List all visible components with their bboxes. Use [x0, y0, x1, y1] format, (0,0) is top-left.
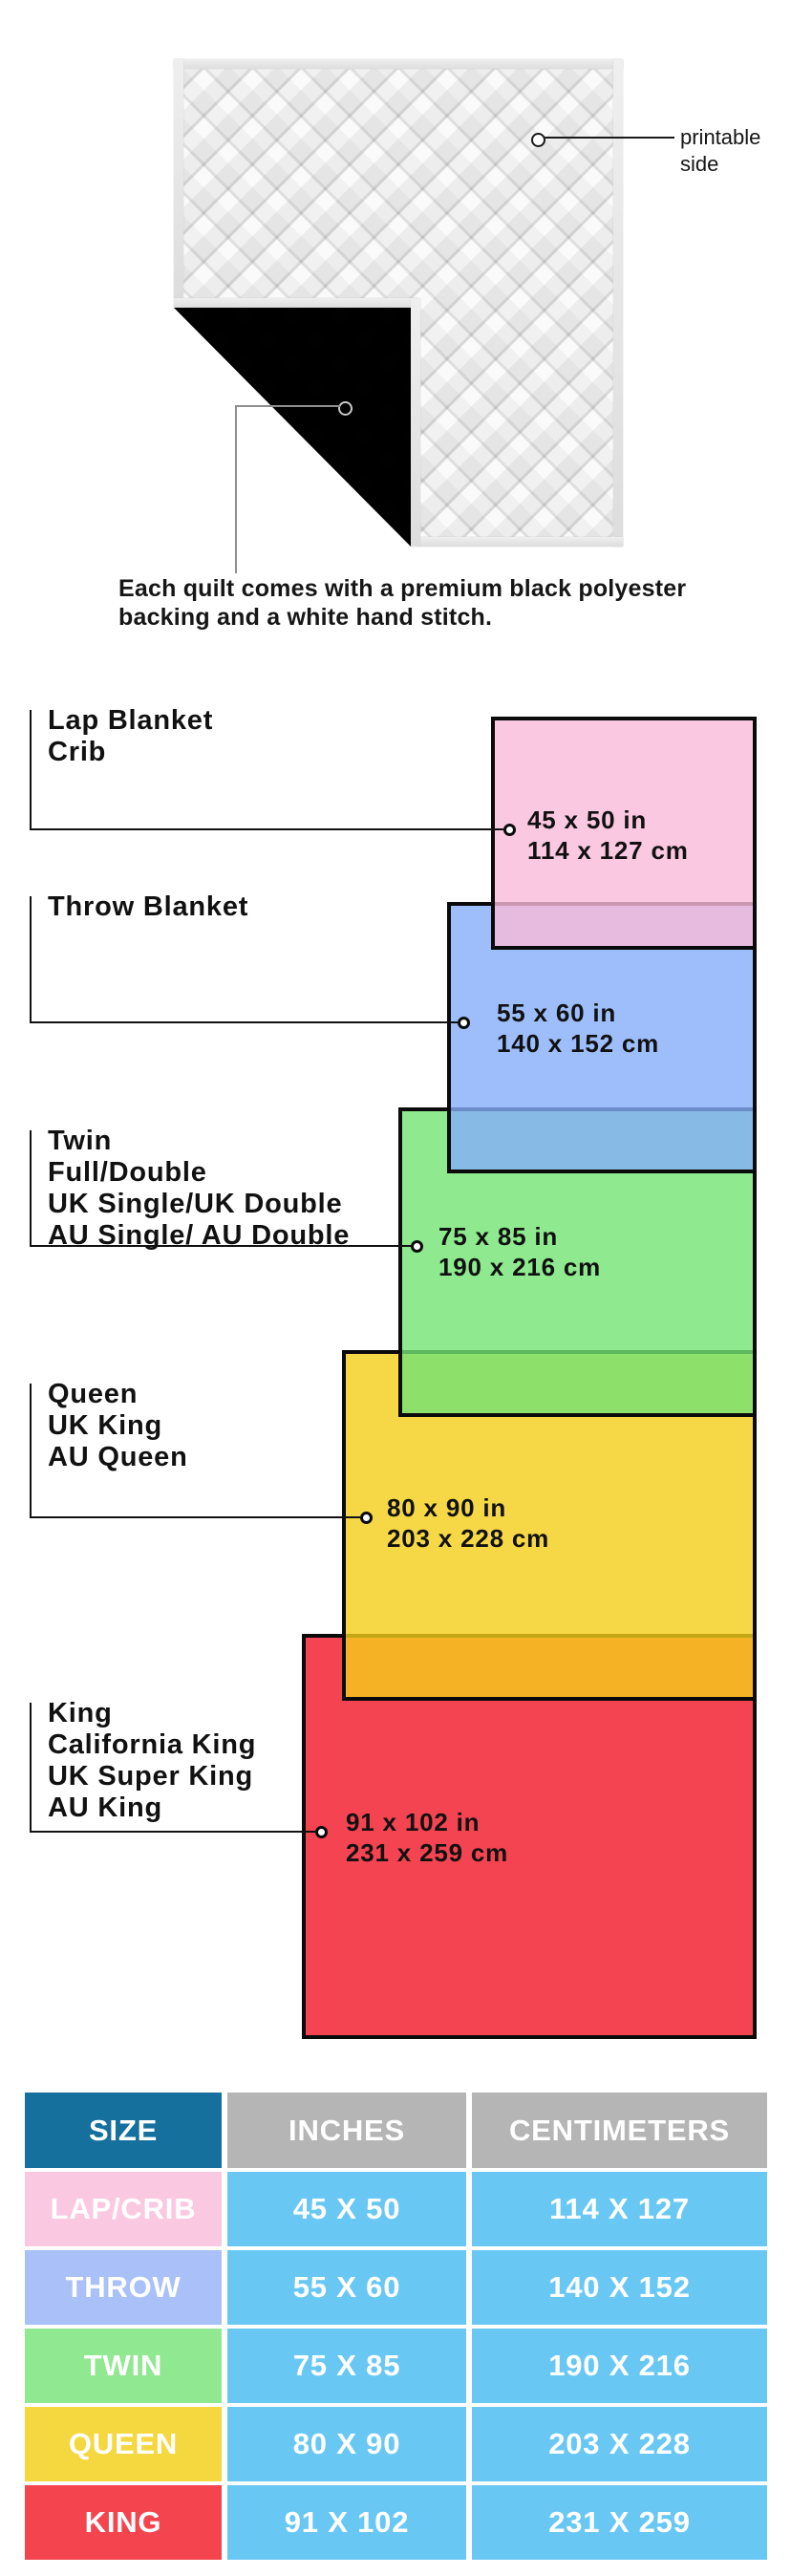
size-label-king-line4: AU King — [48, 1792, 256, 1824]
table-row-lap-size: LAP/CRIB — [25, 2172, 222, 2246]
quilt-caption-line1: Each quilt comes with a premium black po… — [118, 574, 686, 603]
size-label-twin-line4: AU Single/ AU Double — [48, 1220, 350, 1252]
printable-side-callout-line — [544, 137, 674, 139]
lap-connector-tick — [30, 710, 32, 829]
table-row-twin-cm: 190 X 216 — [472, 2329, 767, 2403]
queen-connector-dot — [360, 1512, 373, 1524]
size-label-queen: Queen UK King AU Queen — [48, 1379, 188, 1473]
queen-dim-inches: 80 x 90 in — [387, 1492, 549, 1523]
quilt-size-guide-infographic: printable side Each quilt comes with a p… — [0, 0, 791, 2576]
size-label-lap-line1: Lap Blanket — [48, 705, 213, 737]
quilt-binding-top — [174, 59, 623, 69]
size-label-king-line2: California King — [48, 1729, 256, 1761]
backing-marker-dot — [338, 401, 353, 416]
throw-connector-tick — [30, 896, 32, 1022]
twin-connector-line — [30, 1245, 411, 1247]
table-row-twin-size: TWIN — [25, 2329, 222, 2403]
table-row-twin-inches: 75 X 85 — [227, 2329, 466, 2403]
table-row-queen-inches: 80 X 90 — [227, 2407, 466, 2481]
lap-dim-cm: 114 x 127 cm — [527, 835, 689, 866]
table-row-throw-inches: 55 X 60 — [227, 2250, 466, 2325]
king-dim-cm: 231 x 259 cm — [346, 1837, 508, 1868]
size-table: SIZE INCHES CENTIMETERS LAP/CRIB 45 X 50… — [25, 2093, 767, 2560]
size-dims-throw: 55 x 60 in 140 x 152 cm — [497, 998, 659, 1059]
king-connector-tick — [30, 1703, 32, 1832]
throw-connector-dot — [458, 1017, 470, 1029]
table-row-king-size: KING — [25, 2485, 222, 2560]
lap-dim-inches: 45 x 50 in — [527, 805, 689, 835]
table-row-throw-size: THROW — [25, 2250, 222, 2325]
size-label-king-line3: UK Super King — [48, 1761, 256, 1792]
twin-dim-inches: 75 x 85 in — [438, 1221, 601, 1252]
queen-connector-line — [30, 1516, 360, 1518]
size-label-twin-line1: Twin — [48, 1126, 350, 1157]
backing-callout-line-horizontal — [236, 405, 340, 407]
printable-side-marker-dot — [531, 133, 545, 147]
table-header-size: SIZE — [25, 2093, 222, 2168]
table-row-throw-cm: 140 X 152 — [472, 2250, 767, 2325]
lap-connector-line — [30, 828, 503, 830]
twin-connector-dot — [411, 1240, 423, 1253]
king-connector-line — [30, 1831, 315, 1833]
size-label-throw-line1: Throw Blanket — [48, 891, 248, 923]
table-row-king-inches: 91 X 102 — [227, 2485, 466, 2560]
twin-dim-cm: 190 x 216 cm — [438, 1252, 601, 1282]
king-dim-inches: 91 x 102 in — [346, 1807, 508, 1837]
size-label-twin-line2: Full/Double — [48, 1157, 350, 1189]
twin-connector-tick — [30, 1130, 32, 1246]
table-row-lap-inches: 45 X 50 — [227, 2172, 466, 2246]
throw-dim-cm: 140 x 152 cm — [497, 1028, 659, 1059]
size-label-king: King California King UK Super King AU Ki… — [48, 1698, 256, 1824]
size-label-twin-line3: UK Single/UK Double — [48, 1189, 350, 1220]
size-label-lap-line2: Crib — [48, 737, 213, 768]
backing-callout-line-vertical — [235, 405, 237, 573]
printable-side-label: printable side — [680, 124, 760, 178]
king-connector-dot — [315, 1826, 328, 1838]
size-label-throw: Throw Blanket — [48, 891, 248, 923]
size-label-queen-line2: UK King — [48, 1410, 188, 1442]
quilt-binding-bottom — [417, 537, 623, 547]
lap-connector-dot — [503, 824, 516, 836]
quilt-caption-line2: backing and a white hand stitch. — [118, 603, 686, 632]
throw-connector-line — [30, 1021, 458, 1023]
quilt-caption: Each quilt comes with a premium black po… — [118, 574, 686, 632]
throw-dim-inches: 55 x 60 in — [497, 998, 659, 1028]
size-label-queen-line1: Queen — [48, 1379, 188, 1410]
size-label-queen-line3: AU Queen — [48, 1442, 188, 1473]
size-dims-lap: 45 x 50 in 114 x 127 cm — [527, 805, 689, 866]
queen-dim-cm: 203 x 228 cm — [387, 1523, 549, 1554]
size-dims-king: 91 x 102 in 231 x 259 cm — [346, 1807, 508, 1868]
table-header-centimeters: CENTIMETERS — [472, 2093, 767, 2168]
size-label-twin: Twin Full/Double UK Single/UK Double AU … — [48, 1126, 350, 1252]
size-dims-twin: 75 x 85 in 190 x 216 cm — [438, 1221, 601, 1282]
table-row-king-cm: 231 X 259 — [472, 2485, 767, 2560]
size-dims-queen: 80 x 90 in 203 x 228 cm — [387, 1492, 549, 1554]
table-row-lap-cm: 114 X 127 — [472, 2172, 767, 2246]
queen-connector-tick — [30, 1384, 32, 1517]
printable-side-label-line1: printable — [680, 124, 760, 151]
table-row-queen-cm: 203 X 228 — [472, 2407, 767, 2481]
table-row-queen-size: QUEEN — [25, 2407, 222, 2481]
printable-side-label-line2: side — [680, 151, 760, 178]
quilt-binding-left — [174, 59, 183, 298]
size-label-king-line1: King — [48, 1698, 256, 1729]
size-label-lap: Lap Blanket Crib — [48, 705, 213, 768]
table-header-inches: INCHES — [227, 2093, 466, 2168]
quilt-binding-fold-seam — [411, 298, 420, 547]
quilt-binding-right — [613, 59, 623, 547]
quilt-black-backing-corner — [174, 308, 411, 547]
quilt-binding-fold-top — [174, 298, 417, 308]
